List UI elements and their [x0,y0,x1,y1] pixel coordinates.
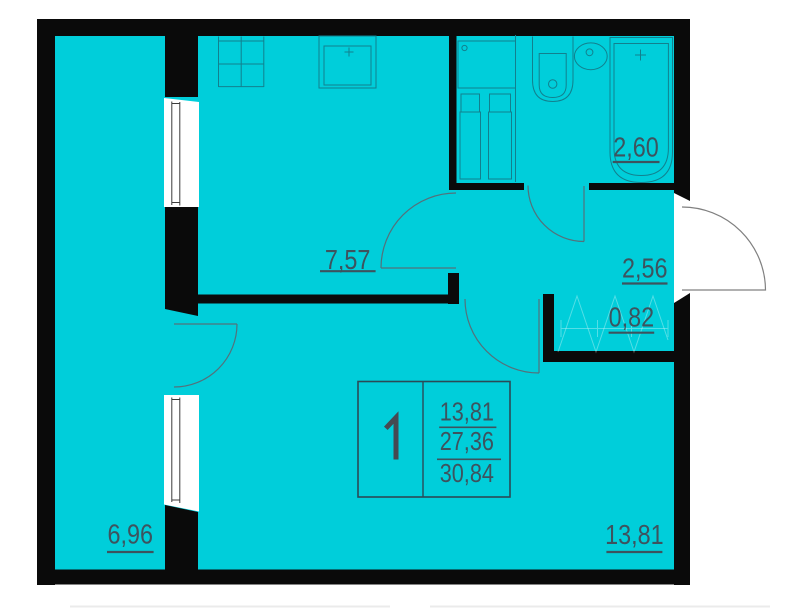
svg-text:6,96: 6,96 [108,520,153,550]
svg-text:27,36: 27,36 [440,429,494,457]
svg-text:2,60: 2,60 [613,133,658,163]
svg-text:2,56: 2,56 [622,254,667,284]
svg-text:13,81: 13,81 [605,520,663,550]
svg-text:30,84: 30,84 [440,461,494,489]
svg-text:0,82: 0,82 [609,303,654,333]
svg-text:13,81: 13,81 [440,399,494,427]
